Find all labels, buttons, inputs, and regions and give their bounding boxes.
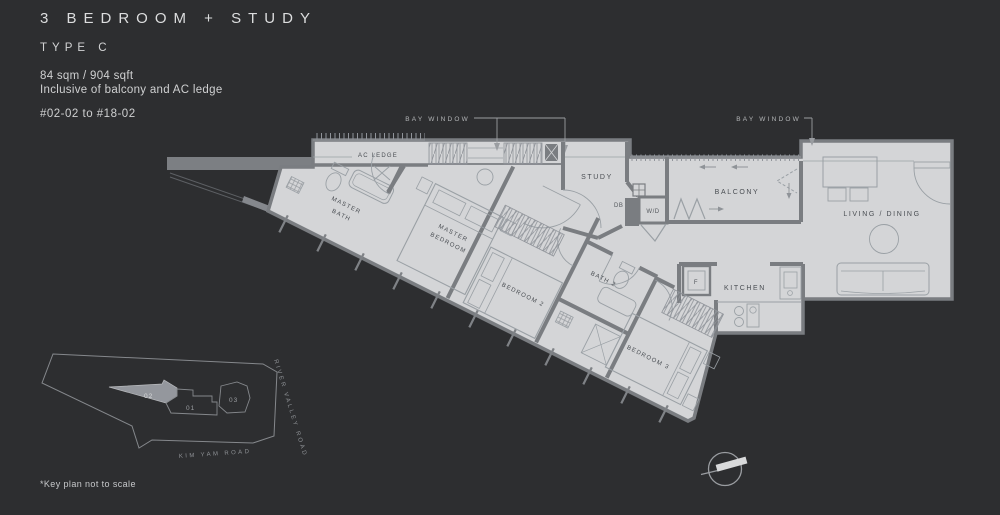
wd-label: W/D [646,209,659,215]
river-valley-road-label: RIVER VALLEY ROAD [272,359,308,458]
kitchen-label: KITCHEN [724,285,766,292]
key-plan: 02 01 03 RIVER VALLEY ROAD KIM YAM ROAD … [40,354,308,489]
keyplan-note: *Key plan not to scale [40,479,136,489]
ac-ledge-label: AC LEDGE [358,153,398,159]
keyplan-unit-03-label: 03 [229,397,238,404]
bay-window-label-right: BAY WINDOW [736,116,801,123]
fridge-label: F [694,280,698,286]
keyplan-unit-01-label: 01 [186,405,195,412]
floorplan-page: 3 BEDROOM + STUDY TYPE C 84 sqm / 904 sq… [0,0,1000,515]
keyplan-unit-02-shape [109,380,177,403]
living-dining-label: LIVING / DINING [843,211,920,218]
floorplan-drawing: AC LEDGE BAY WINDOW BAY WINDOW [0,0,1000,515]
keyplan-unit-02-label: 02 [144,393,153,400]
bay-window-label-left: BAY WINDOW [405,116,470,123]
db-label: DB [614,203,623,209]
study-label: STUDY [581,174,613,181]
north-indicator-icon [701,453,747,486]
balcony-label: BALCONY [715,189,760,196]
kim-yam-road-label: KIM YAM ROAD [179,449,252,460]
